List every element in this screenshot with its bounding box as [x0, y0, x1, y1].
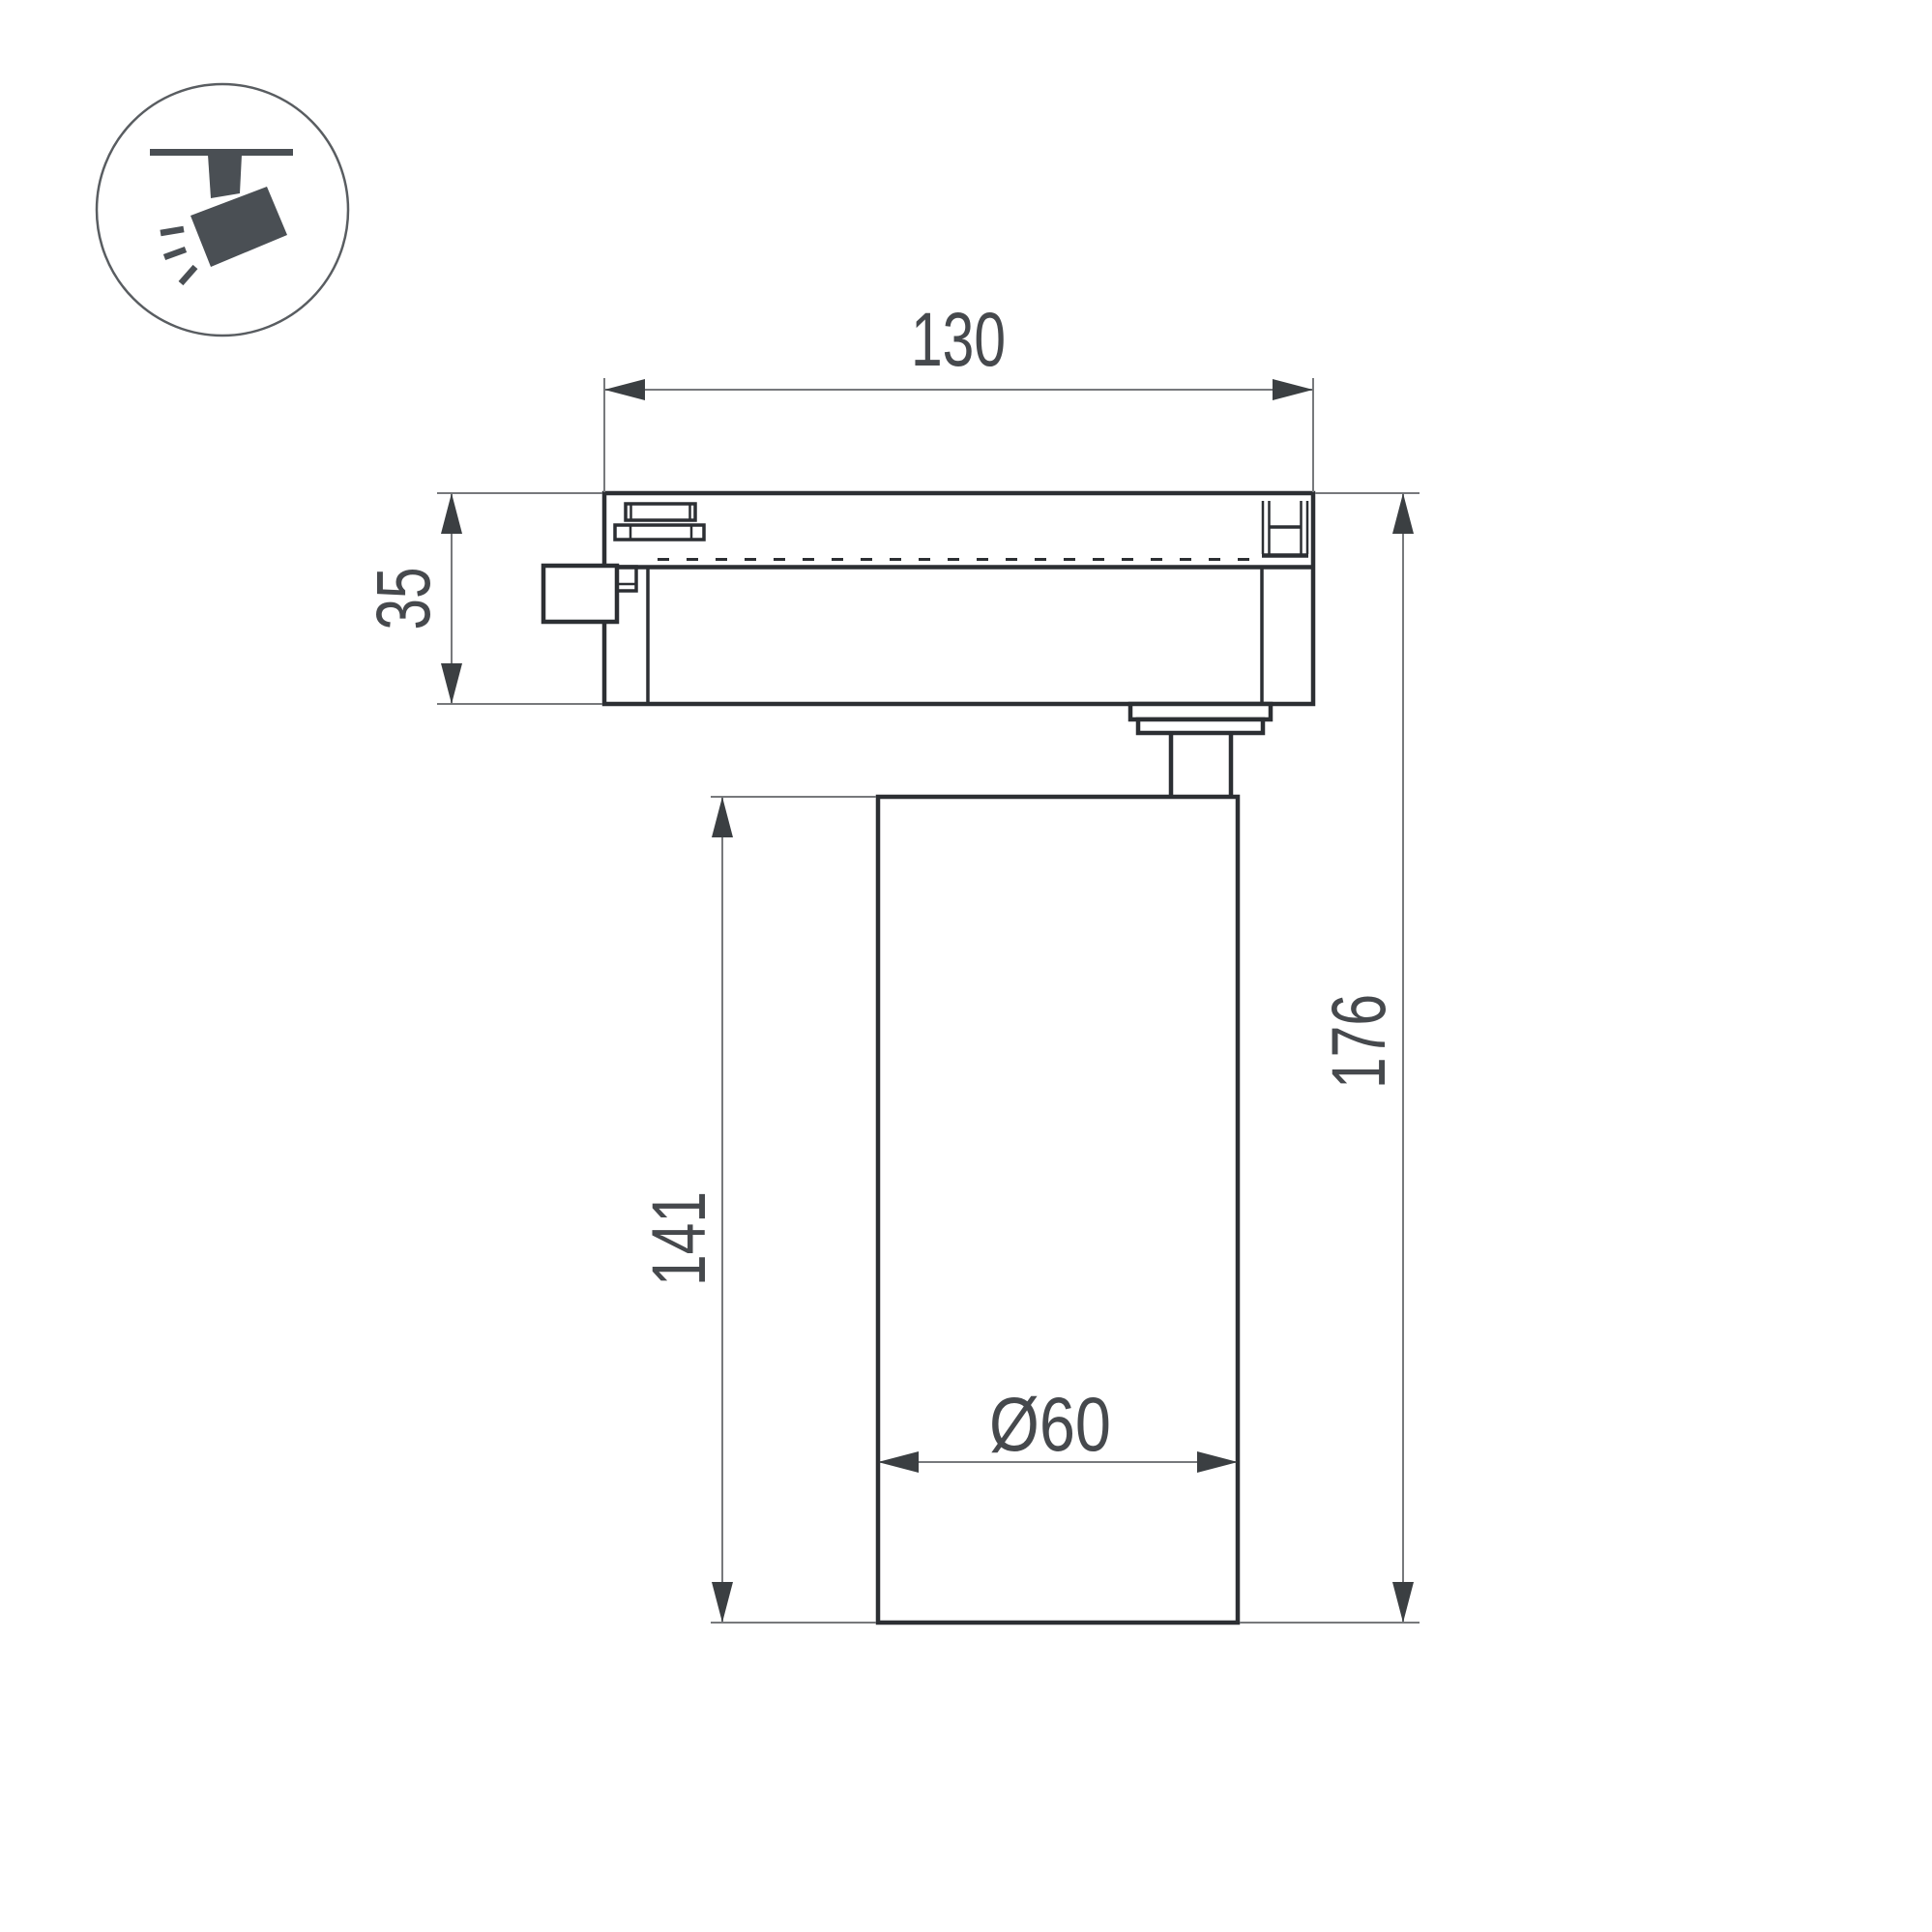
dim-label-total-height: 176 [1315, 994, 1401, 1089]
dim-label-adapter-height: 35 [360, 568, 446, 630]
icon-track-bar [150, 149, 293, 156]
track-light-icon [97, 84, 348, 336]
adapter-outer-shell [604, 493, 1313, 704]
lamp-body [878, 797, 1238, 1623]
technical-drawing-page: 130 35 141 176 [0, 0, 1932, 1932]
dimension-track-width: 130 [604, 296, 1313, 492]
icon-stem [208, 155, 242, 198]
dimension-body-length: 141 [635, 797, 876, 1623]
dim-label-body-length: 141 [635, 1191, 721, 1286]
dimension-total-height: 176 [1315, 493, 1420, 1623]
adapter-side-knob [543, 566, 617, 622]
joint-flange-upper [1130, 704, 1271, 719]
joint-flange-lower [1138, 719, 1263, 733]
swivel-joint [1130, 704, 1271, 797]
technical-drawing: 130 35 141 176 [0, 0, 1932, 1932]
track-adapter [543, 493, 1313, 704]
dim-label-body-diameter: Ø60 [989, 1381, 1111, 1467]
dim-label-track-width: 130 [911, 296, 1006, 382]
